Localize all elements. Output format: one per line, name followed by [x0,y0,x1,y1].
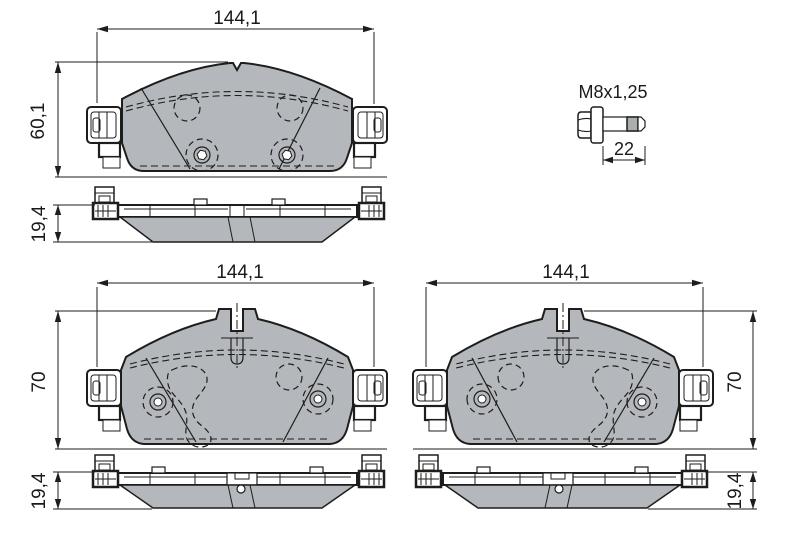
bottom-right-pad-assembly: 144,1 70 19,4 [413,262,757,509]
dim-label-width-bottom-right: 144,1 [542,262,590,283]
bolt-head [578,112,591,138]
dim-label-height-bottom-left: 70 [29,371,50,392]
bolt-thread-zone [627,117,638,131]
dim-label-height-top: 60,1 [28,103,49,140]
bolt-flange [591,107,603,143]
backplate-profile [118,205,357,217]
dim-label-width-top: 144,1 [213,8,261,29]
dim-label-thickness-bottom-right: 19,4 [725,472,746,509]
dimension-bolt-length: 22 [603,139,645,165]
dim-label-width-bottom-left: 144,1 [216,262,264,283]
friction-material-profile [120,217,355,242]
bolt-thread-label: M8x1,25 [578,82,647,102]
dim-label-height-bottom-right: 70 [725,371,746,392]
bolt-view: M8x1,25 22 [578,82,648,165]
bolt-tip [638,117,645,131]
brake-pad-drawing: 144,1 60,1 19,4 M8x1,25 [0,0,800,533]
technical-drawing-page: 144,1 60,1 19,4 M8x1,25 [0,0,800,533]
top-pad-assembly: 144,1 60,1 19,4 [28,8,387,242]
dim-label-thickness-bottom-left: 19,4 [29,472,50,509]
pad-backplate-outline [122,63,352,171]
dim-label-bolt-length: 22 [614,139,634,159]
dim-label-thickness-top: 19,4 [29,205,50,242]
bottom-left-pad-assembly: 144,1 70 19,4 [29,262,387,509]
